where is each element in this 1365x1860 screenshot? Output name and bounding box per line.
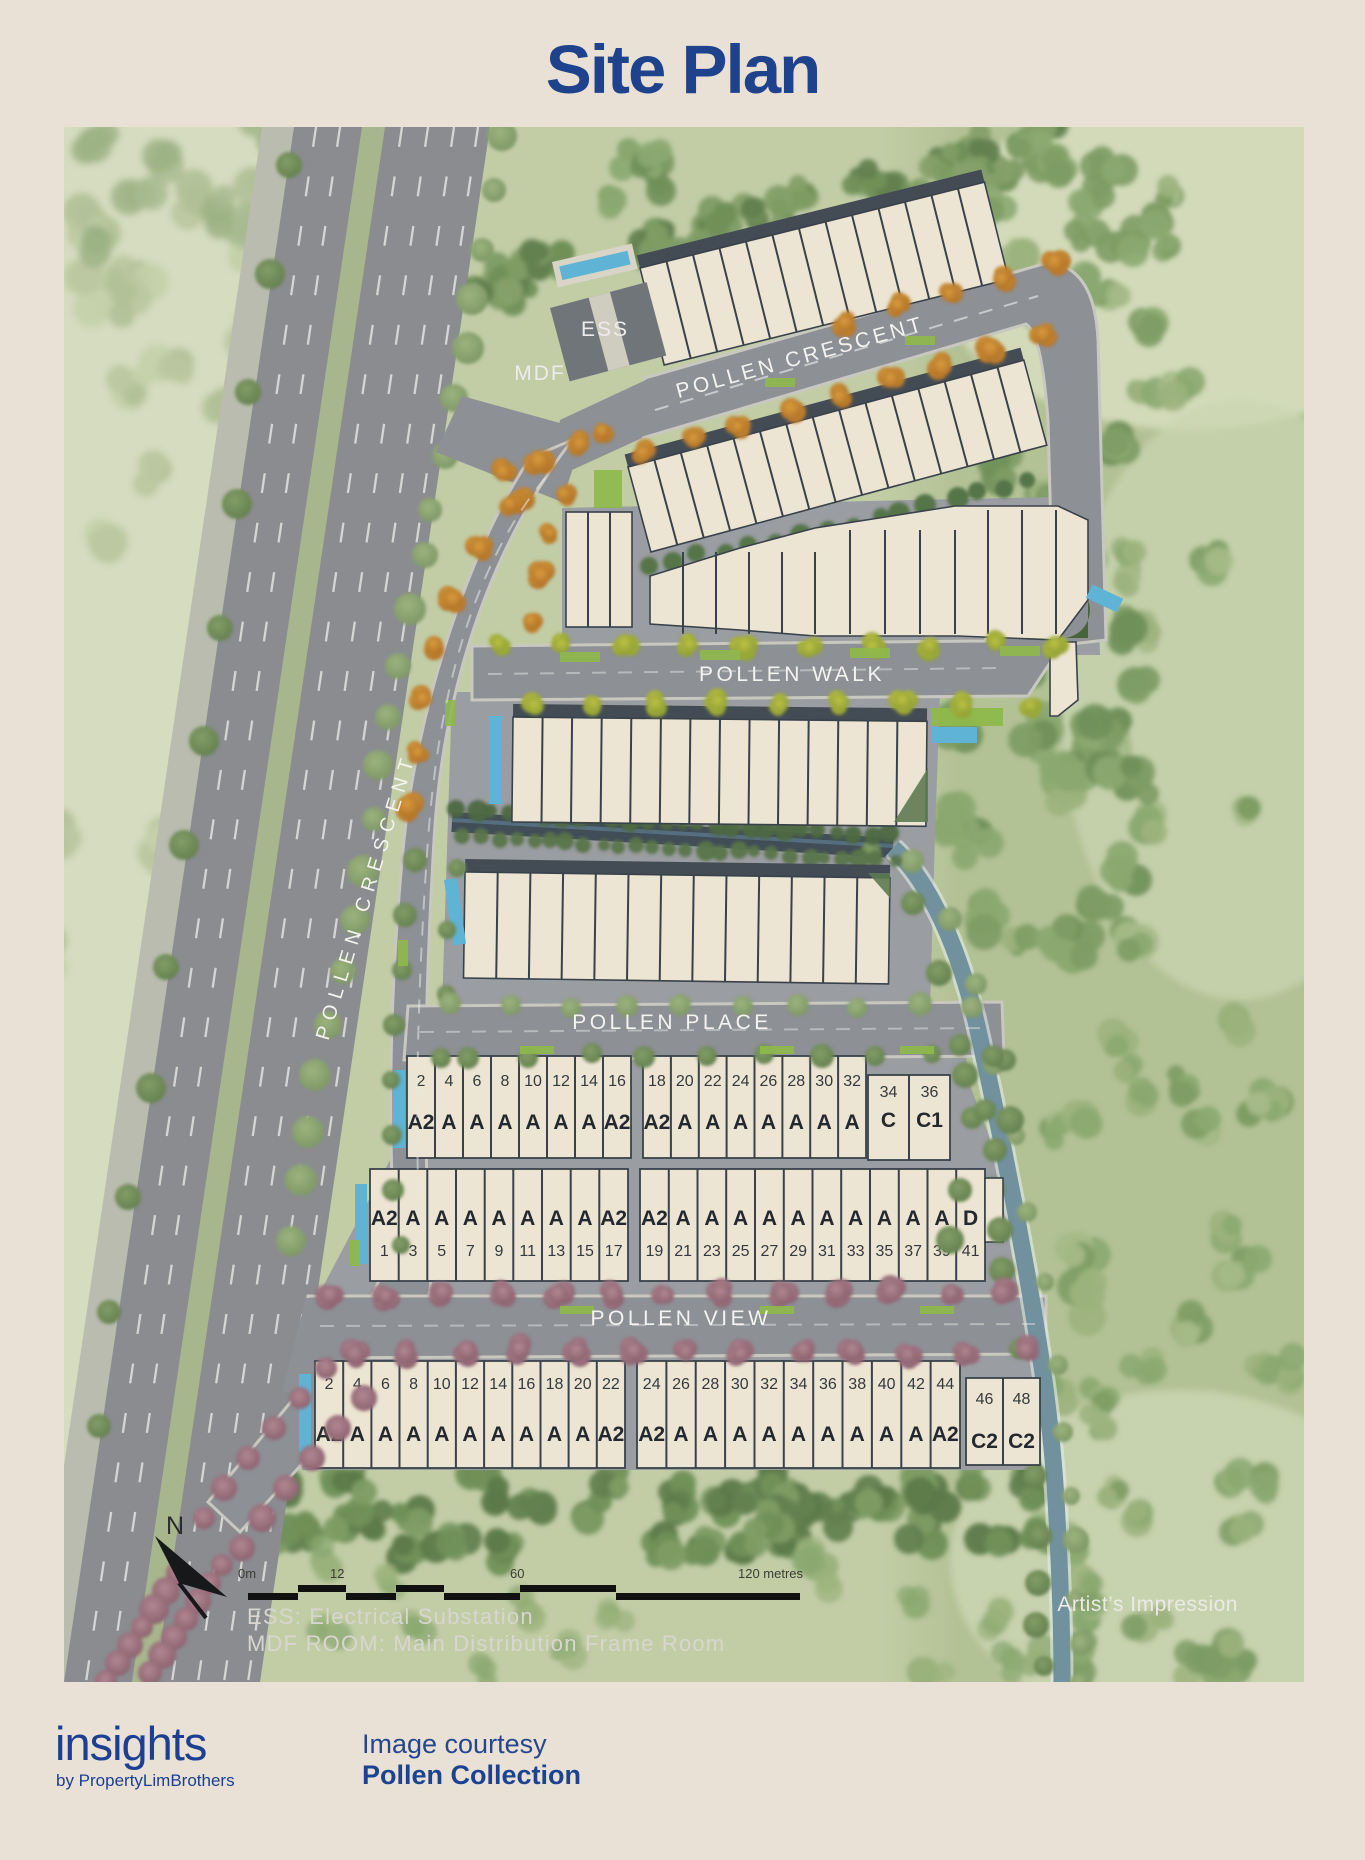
svg-text:A: A	[820, 1423, 835, 1446]
svg-text:4: 4	[445, 1073, 454, 1090]
svg-text:26: 26	[760, 1073, 778, 1090]
svg-text:A: A	[879, 1423, 894, 1446]
svg-text:26: 26	[672, 1376, 690, 1393]
svg-text:6: 6	[381, 1376, 390, 1393]
svg-text:A: A	[762, 1423, 777, 1446]
svg-text:34: 34	[790, 1376, 808, 1393]
svg-text:C2: C2	[1008, 1430, 1035, 1453]
svg-text:120 metres: 120 metres	[738, 1566, 804, 1581]
svg-text:12: 12	[461, 1376, 479, 1393]
svg-text:POLLEN WALK: POLLEN WALK	[699, 663, 885, 686]
svg-text:36: 36	[819, 1376, 837, 1393]
svg-text:A: A	[733, 1207, 748, 1230]
svg-text:D: D	[963, 1207, 978, 1230]
svg-text:A: A	[761, 1111, 776, 1134]
svg-text:A: A	[850, 1423, 865, 1446]
svg-text:Pollen Collection: Pollen Collection	[362, 1760, 581, 1790]
svg-text:A2: A2	[371, 1207, 398, 1230]
svg-text:A: A	[906, 1207, 921, 1230]
svg-text:A: A	[762, 1207, 777, 1230]
svg-text:A: A	[791, 1207, 806, 1230]
svg-text:A: A	[406, 1423, 421, 1446]
svg-text:A: A	[577, 1207, 592, 1230]
svg-text:MDF: MDF	[514, 362, 566, 385]
svg-text:insights: insights	[55, 1717, 206, 1770]
svg-text:14: 14	[580, 1073, 598, 1090]
svg-text:A2: A2	[643, 1111, 670, 1134]
svg-text:15: 15	[576, 1243, 594, 1260]
svg-text:28: 28	[787, 1073, 805, 1090]
svg-text:A: A	[733, 1111, 748, 1134]
svg-text:46: 46	[976, 1391, 994, 1408]
svg-text:11: 11	[519, 1243, 536, 1260]
svg-text:29: 29	[789, 1243, 807, 1260]
svg-text:0m: 0m	[238, 1566, 256, 1581]
svg-text:A: A	[469, 1111, 484, 1134]
svg-text:A: A	[791, 1423, 806, 1446]
svg-text:12: 12	[552, 1073, 570, 1090]
svg-text:A: A	[575, 1423, 590, 1446]
svg-text:9: 9	[495, 1243, 504, 1260]
svg-text:A2: A2	[604, 1111, 631, 1134]
svg-text:A2: A2	[932, 1423, 959, 1446]
svg-text:A: A	[789, 1111, 804, 1134]
svg-text:48: 48	[1013, 1391, 1031, 1408]
svg-text:A2: A2	[408, 1111, 435, 1134]
svg-text:A: A	[350, 1423, 365, 1446]
svg-text:A: A	[463, 1207, 478, 1230]
svg-text:A: A	[491, 1423, 506, 1446]
svg-text:A: A	[848, 1207, 863, 1230]
svg-text:A2: A2	[638, 1423, 665, 1446]
svg-text:23: 23	[703, 1243, 721, 1260]
svg-text:A: A	[441, 1111, 456, 1134]
svg-text:MDF ROOM: Main Distribution Fr: MDF ROOM: Main Distribution Frame Room	[247, 1631, 725, 1656]
svg-text:30: 30	[815, 1073, 833, 1090]
svg-text:22: 22	[602, 1376, 620, 1393]
svg-text:10: 10	[524, 1073, 542, 1090]
svg-text:16: 16	[608, 1073, 626, 1090]
svg-text:37: 37	[904, 1243, 922, 1260]
svg-text:32: 32	[760, 1376, 778, 1393]
svg-text:A: A	[877, 1207, 892, 1230]
svg-text:A: A	[378, 1423, 393, 1446]
svg-text:5: 5	[437, 1243, 446, 1260]
svg-text:A: A	[519, 1423, 534, 1446]
svg-text:A: A	[845, 1111, 860, 1134]
svg-text:A: A	[525, 1111, 540, 1134]
svg-text:41: 41	[962, 1243, 980, 1260]
svg-text:A: A	[581, 1111, 596, 1134]
svg-text:27: 27	[761, 1243, 779, 1260]
svg-text:8: 8	[409, 1376, 418, 1393]
svg-text:17: 17	[605, 1243, 623, 1260]
svg-text:A: A	[497, 1111, 512, 1134]
svg-text:40: 40	[878, 1376, 896, 1393]
svg-text:A: A	[819, 1207, 834, 1230]
svg-text:60: 60	[510, 1566, 524, 1581]
svg-text:36: 36	[921, 1084, 939, 1101]
svg-text:A: A	[549, 1207, 564, 1230]
svg-text:20: 20	[676, 1073, 694, 1090]
svg-text:18: 18	[648, 1073, 666, 1090]
svg-text:A2: A2	[641, 1207, 668, 1230]
svg-text:A: A	[704, 1207, 719, 1230]
svg-text:A: A	[434, 1207, 449, 1230]
svg-text:Artist’s Impression: Artist’s Impression	[1057, 1593, 1238, 1616]
svg-text:N: N	[166, 1512, 184, 1540]
svg-text:A2: A2	[600, 1207, 627, 1230]
svg-text:34: 34	[880, 1084, 898, 1101]
svg-text:C: C	[881, 1109, 896, 1132]
svg-text:A: A	[673, 1423, 688, 1446]
svg-text:12: 12	[330, 1566, 344, 1581]
svg-text:35: 35	[876, 1243, 894, 1260]
svg-text:1: 1	[380, 1243, 389, 1260]
svg-text:Image courtesy: Image courtesy	[362, 1729, 547, 1759]
svg-text:13: 13	[547, 1243, 565, 1260]
svg-text:10: 10	[433, 1376, 451, 1393]
svg-text:A: A	[732, 1423, 747, 1446]
svg-text:24: 24	[732, 1073, 750, 1090]
svg-text:28: 28	[702, 1376, 720, 1393]
svg-text:21: 21	[674, 1243, 692, 1260]
svg-text:25: 25	[732, 1243, 750, 1260]
svg-text:A: A	[703, 1423, 718, 1446]
svg-text:A: A	[462, 1423, 477, 1446]
svg-text:A: A	[817, 1111, 832, 1134]
svg-text:A: A	[705, 1111, 720, 1134]
svg-text:C2: C2	[971, 1430, 998, 1453]
svg-text:33: 33	[847, 1243, 865, 1260]
svg-text:A: A	[676, 1207, 691, 1230]
svg-text:18: 18	[546, 1376, 564, 1393]
svg-text:6: 6	[473, 1073, 482, 1090]
svg-text:Site Plan: Site Plan	[546, 31, 819, 108]
svg-text:A: A	[434, 1423, 449, 1446]
svg-text:19: 19	[646, 1243, 664, 1260]
svg-text:POLLEN VIEW: POLLEN VIEW	[591, 1307, 772, 1330]
svg-text:42: 42	[907, 1376, 925, 1393]
svg-text:30: 30	[731, 1376, 749, 1393]
svg-text:A: A	[520, 1207, 535, 1230]
svg-text:14: 14	[489, 1376, 507, 1393]
svg-text:ESS: Electrical Substation: ESS: Electrical Substation	[247, 1604, 534, 1629]
svg-text:16: 16	[518, 1376, 536, 1393]
svg-text:8: 8	[501, 1073, 510, 1090]
svg-text:A: A	[491, 1207, 506, 1230]
svg-text:32: 32	[843, 1073, 861, 1090]
svg-text:22: 22	[704, 1073, 722, 1090]
svg-text:38: 38	[848, 1376, 866, 1393]
svg-text:A: A	[547, 1423, 562, 1446]
svg-text:ESS: ESS	[581, 318, 629, 341]
svg-text:A: A	[553, 1111, 568, 1134]
svg-text:20: 20	[574, 1376, 592, 1393]
svg-text:by PropertyLimBrothers: by PropertyLimBrothers	[56, 1771, 235, 1790]
svg-text:POLLEN PLACE: POLLEN PLACE	[572, 1011, 772, 1034]
svg-text:A2: A2	[597, 1423, 624, 1446]
svg-text:A: A	[677, 1111, 692, 1134]
svg-text:A: A	[908, 1423, 923, 1446]
svg-text:44: 44	[936, 1376, 954, 1393]
svg-text:C1: C1	[916, 1109, 943, 1132]
svg-text:31: 31	[818, 1243, 836, 1260]
svg-text:24: 24	[643, 1376, 661, 1393]
svg-text:7: 7	[466, 1243, 475, 1260]
